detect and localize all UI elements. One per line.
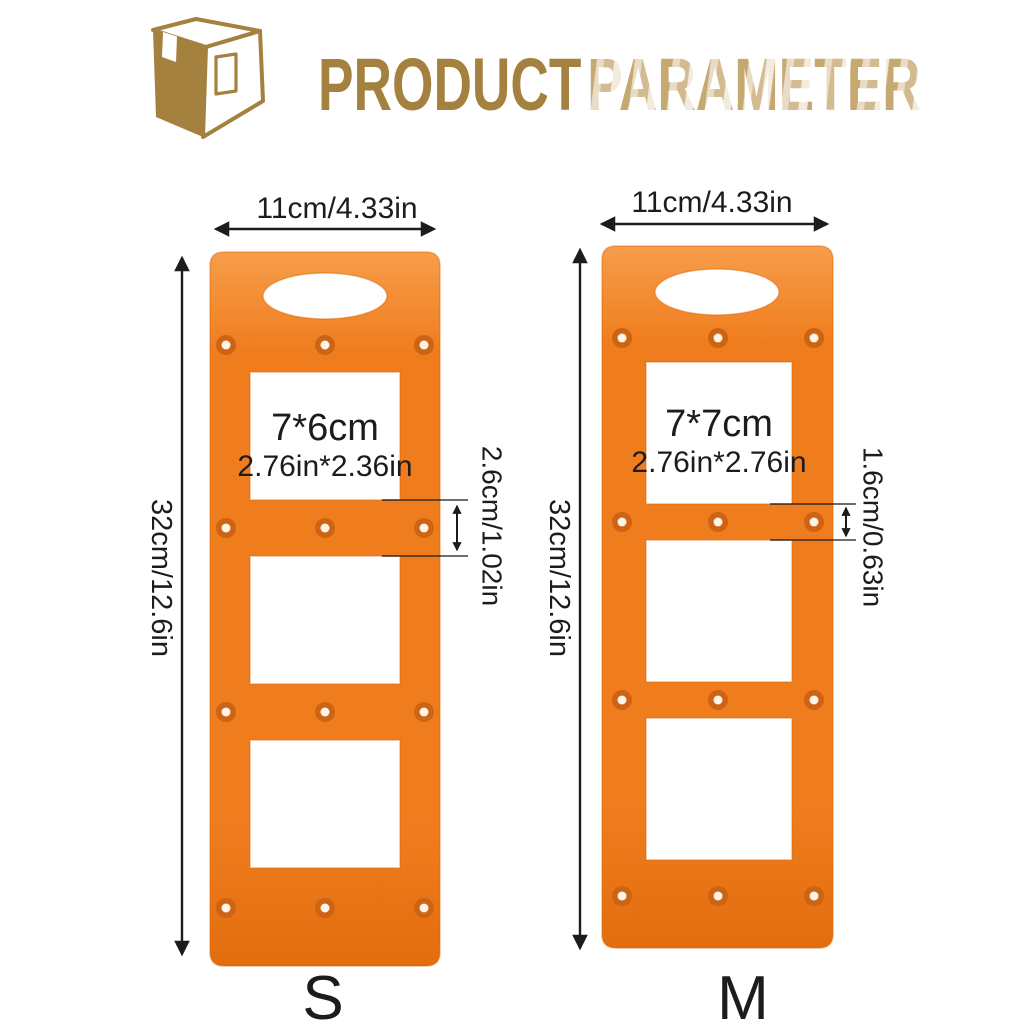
dimension-diagram: 11cm/4.33in 32cm/12.6in 7*6cm 2.76in*2.3… <box>0 160 1024 1024</box>
template-s: 11cm/4.33in 32cm/12.6in 7*6cm 2.76in*2.3… <box>145 192 508 1024</box>
title-word-product: PRODUCT <box>318 50 581 126</box>
slot-size-in: 2.76in*2.76in <box>631 446 806 479</box>
package-box-icon <box>150 16 287 140</box>
size-letter: S <box>302 964 343 1024</box>
box-right-face <box>203 31 263 137</box>
screw-hole-center <box>618 334 627 343</box>
slot-size-cm: 7*6cm <box>271 407 379 449</box>
screw-hole-center <box>714 518 723 527</box>
screw-hole-center <box>714 334 723 343</box>
template-s-plate <box>210 252 440 966</box>
product-parameter-infographic: PRODUCT PARAMETER <box>0 0 1024 1024</box>
screw-hole-center <box>222 524 231 533</box>
template-m: 11cm/4.33in 32cm/12.6in 7*7cm 2.76in*2.7… <box>543 186 889 1024</box>
size-letter: M <box>717 964 769 1024</box>
template-m-plate <box>602 246 833 948</box>
screw-hole-center <box>618 696 627 705</box>
slot-size-in: 2.76in*2.36in <box>237 450 412 483</box>
screw-hole-center <box>714 696 723 705</box>
screw-hole-center <box>222 341 231 350</box>
screw-hole-center <box>420 708 429 717</box>
screw-hole-center <box>810 334 819 343</box>
slot-size-cm: 7*7cm <box>665 403 773 445</box>
screw-hole-center <box>321 708 330 717</box>
gap-label: 1.6cm/0.63in <box>858 447 889 607</box>
height-label: 32cm/12.6in <box>543 499 575 657</box>
width-label: 11cm/4.33in <box>256 192 417 225</box>
screw-hole-center <box>321 341 330 350</box>
screw-hole-center <box>420 904 429 913</box>
page-title: PRODUCT PARAMETER <box>318 50 938 142</box>
screw-hole-center <box>321 904 330 913</box>
screw-hole-center <box>618 892 627 901</box>
screw-hole-center <box>321 524 330 533</box>
box-left-face <box>153 30 206 137</box>
screw-hole-center <box>618 518 627 527</box>
screw-hole-center <box>714 892 723 901</box>
height-label: 32cm/12.6in <box>145 499 177 657</box>
title-word-parameter: PARAMETER <box>587 50 920 126</box>
screw-hole-center <box>222 904 231 913</box>
screw-hole-center <box>222 708 231 717</box>
gap-label: 2.6cm/1.02in <box>477 446 508 606</box>
screw-hole-center <box>420 341 429 350</box>
screw-hole-center <box>810 696 819 705</box>
screw-hole-center <box>420 524 429 533</box>
box-tape <box>162 32 177 62</box>
screw-hole-center <box>810 892 819 901</box>
width-label: 11cm/4.33in <box>631 186 792 219</box>
screw-hole-center <box>810 518 819 527</box>
